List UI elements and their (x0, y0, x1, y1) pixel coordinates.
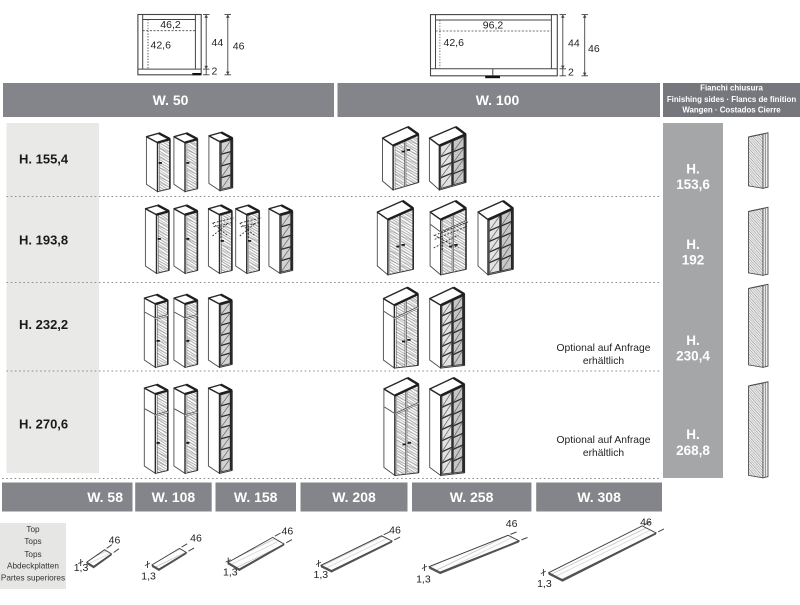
svg-text:H.: H. (686, 162, 700, 177)
svg-text:Finishing sides · Flancs de fi: Finishing sides · Flancs de finition (667, 95, 797, 104)
svg-text:44: 44 (212, 37, 224, 49)
svg-text:W. 108: W. 108 (152, 489, 196, 505)
svg-text:46: 46 (640, 517, 652, 529)
svg-text:46: 46 (389, 525, 401, 537)
svg-text:H.: H. (686, 333, 700, 348)
svg-text:Optional auf Anfrage: Optional auf Anfrage (557, 343, 651, 354)
svg-text:1,3: 1,3 (223, 567, 238, 579)
svg-text:Partes superiores: Partes superiores (1, 574, 65, 583)
svg-text:Top: Top (26, 525, 40, 534)
svg-text:268,8: 268,8 (676, 443, 710, 458)
svg-text:1,3: 1,3 (537, 578, 552, 590)
svg-text:1,3: 1,3 (313, 569, 328, 581)
svg-text:44: 44 (568, 38, 580, 50)
svg-text:46,2: 46,2 (160, 19, 181, 31)
svg-text:46: 46 (233, 41, 245, 53)
svg-text:1,3: 1,3 (74, 562, 89, 574)
svg-text:46: 46 (506, 518, 518, 530)
svg-text:1,3: 1,3 (416, 574, 431, 586)
svg-text:H.: H. (686, 237, 700, 252)
svg-text:Wangen · Costados Cierre: Wangen · Costados Cierre (682, 106, 781, 115)
svg-text:230,4: 230,4 (676, 349, 710, 364)
svg-text:H. 232,2: H. 232,2 (19, 317, 68, 332)
svg-text:W. 158: W. 158 (234, 489, 278, 505)
svg-text:46: 46 (109, 535, 121, 547)
svg-text:W. 50: W. 50 (153, 92, 189, 108)
svg-text:H. 193,8: H. 193,8 (19, 233, 68, 248)
svg-text:H. 270,6: H. 270,6 (19, 417, 68, 432)
svg-text:W. 58: W. 58 (87, 489, 123, 505)
svg-text:W. 258: W. 258 (450, 489, 494, 505)
svg-text:W. 100: W. 100 (476, 92, 520, 108)
svg-text:42,6: 42,6 (151, 40, 172, 52)
svg-text:Tops: Tops (24, 537, 41, 546)
svg-text:46: 46 (190, 533, 202, 545)
svg-text:Optional auf Anfrage: Optional auf Anfrage (557, 435, 651, 446)
svg-text:2: 2 (212, 66, 218, 78)
svg-text:1,3: 1,3 (141, 571, 156, 583)
svg-text:erhältlich: erhältlich (583, 448, 624, 459)
svg-text:erhältlich: erhältlich (583, 356, 624, 367)
svg-text:H.: H. (686, 427, 700, 442)
svg-text:W. 208: W. 208 (332, 489, 376, 505)
svg-text:46: 46 (282, 526, 294, 538)
svg-text:Abdeckplatten: Abdeckplatten (7, 562, 59, 571)
svg-text:Tops: Tops (24, 550, 41, 559)
svg-text:W. 308: W. 308 (577, 489, 621, 505)
svg-text:2: 2 (568, 67, 574, 79)
svg-text:42,6: 42,6 (444, 37, 465, 49)
svg-text:Fianchi chiusura: Fianchi chiusura (700, 84, 763, 93)
svg-text:H. 155,4: H. 155,4 (19, 152, 69, 167)
svg-text:96,2: 96,2 (483, 20, 504, 32)
svg-text:192: 192 (682, 253, 705, 268)
svg-text:46: 46 (588, 43, 600, 55)
svg-text:153,6: 153,6 (676, 177, 710, 192)
